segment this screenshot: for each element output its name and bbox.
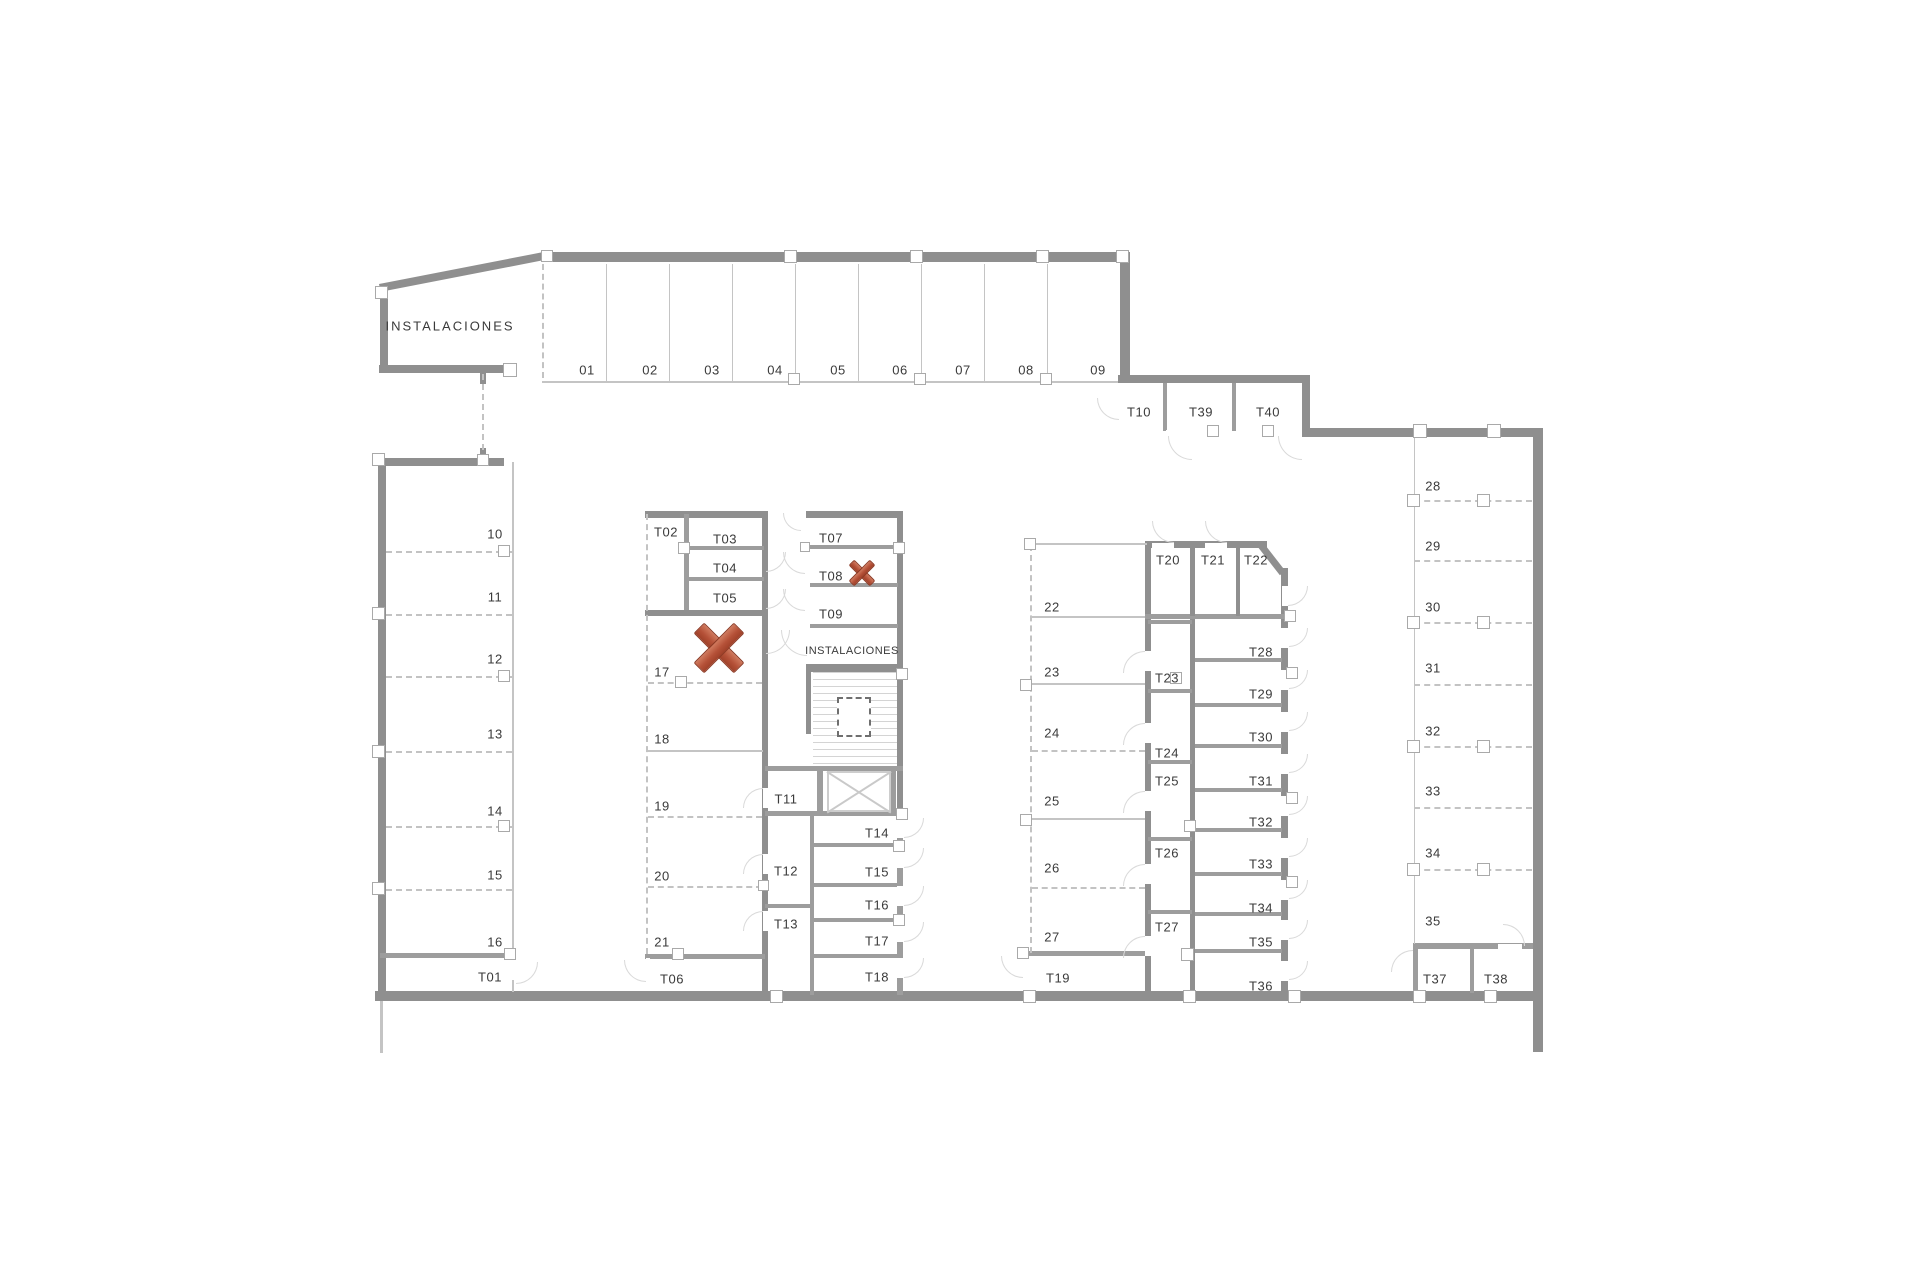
room-label-t06: T06	[660, 972, 684, 987]
column-marker	[1040, 373, 1052, 385]
wall	[1163, 383, 1167, 431]
room-label-09: 09	[1090, 363, 1105, 378]
wall	[810, 545, 898, 549]
door-arc	[1289, 712, 1308, 731]
room-label-15: 15	[487, 868, 502, 883]
door-arc	[904, 818, 924, 838]
wall	[1190, 541, 1195, 616]
wall	[380, 953, 513, 958]
column-marker	[1207, 425, 1219, 437]
room-label-t15: T15	[865, 865, 889, 880]
room-label-t11: T11	[775, 792, 798, 807]
column-marker	[672, 948, 684, 960]
door-arc	[783, 552, 805, 574]
column-marker	[1286, 792, 1298, 804]
room-label-t07: T07	[819, 531, 843, 546]
room-label-t23: T23	[1155, 671, 1179, 686]
wall	[1148, 620, 1192, 624]
door-opening	[1145, 723, 1152, 743]
door-opening	[763, 911, 769, 931]
room-label-04: 04	[767, 363, 782, 378]
wall	[810, 624, 898, 628]
room-label-t16: T16	[865, 898, 889, 913]
wall	[375, 991, 1543, 1001]
door-arc	[1503, 924, 1525, 946]
dashed-parking-divider	[1414, 622, 1532, 624]
column-marker	[503, 363, 517, 377]
room-label-14: 14	[487, 804, 502, 819]
door-arc	[1278, 436, 1302, 460]
column-marker	[784, 250, 797, 263]
dashed-parking-divider	[1414, 746, 1532, 748]
room-label-t30: T30	[1249, 730, 1273, 745]
room-label-t35: T35	[1249, 935, 1273, 950]
dashed-parking-divider	[1032, 887, 1145, 889]
elevator-shaft	[827, 771, 891, 812]
column-marker	[788, 373, 800, 385]
room-label-12: 12	[487, 652, 502, 667]
dashed-parking-divider	[386, 751, 512, 753]
room-label-23: 23	[1044, 665, 1059, 680]
column-marker	[1286, 667, 1298, 679]
door-arc	[1391, 950, 1413, 972]
door-opening	[1281, 628, 1289, 648]
column-marker	[1407, 863, 1420, 876]
room-label-t37: T37	[1423, 972, 1447, 987]
room-label-t34: T34	[1249, 901, 1273, 916]
wall	[1047, 264, 1048, 382]
wall	[1120, 252, 1130, 383]
door-opening	[1281, 754, 1289, 774]
room-label-t14: T14	[865, 826, 889, 841]
door-arc	[766, 552, 786, 572]
wall	[1030, 543, 1147, 545]
wall	[1032, 683, 1145, 685]
wall	[1533, 428, 1543, 1052]
door-arc	[1289, 628, 1308, 647]
column-marker	[1286, 876, 1298, 888]
room-label-05: 05	[830, 363, 845, 378]
wall	[1148, 760, 1192, 764]
wall	[1032, 818, 1145, 820]
room-label-t13: T13	[774, 917, 798, 932]
door-arc	[1123, 791, 1145, 813]
column-marker	[1413, 424, 1427, 438]
wall	[1032, 616, 1145, 618]
column-marker	[675, 676, 687, 688]
door-arc	[1123, 864, 1145, 886]
room-label-t04: T04	[713, 561, 737, 576]
door-arc	[783, 589, 805, 611]
column-marker	[1023, 990, 1036, 1003]
column-marker	[893, 840, 905, 852]
wall	[379, 251, 549, 292]
column-marker	[541, 250, 553, 262]
door-opening	[1152, 543, 1174, 550]
room-label-35: 35	[1425, 914, 1440, 929]
door-arc	[783, 513, 801, 531]
column-marker	[1477, 863, 1490, 876]
room-label-31: 31	[1425, 661, 1440, 676]
column-marker	[1017, 947, 1029, 959]
room-label-t09: T09	[819, 607, 843, 622]
door-opening	[808, 564, 814, 580]
column-marker	[504, 948, 516, 960]
marker-red-x-big-x	[697, 626, 740, 669]
column-marker	[910, 250, 923, 263]
room-label-16: 16	[487, 935, 502, 950]
dashed-parking-divider	[648, 886, 762, 888]
room-label-27: 27	[1044, 930, 1059, 945]
door-arc	[516, 962, 538, 984]
wall	[1118, 375, 1310, 383]
room-label-t26: T26	[1155, 846, 1179, 861]
wall	[984, 264, 985, 382]
column-marker	[1413, 990, 1426, 1003]
wall	[542, 381, 1118, 383]
wall	[1236, 541, 1240, 616]
dashed-parking-divider	[1414, 500, 1532, 502]
column-marker	[1116, 250, 1129, 263]
door-arc	[1123, 936, 1145, 958]
room-label-29: 29	[1425, 539, 1440, 554]
door-arc	[766, 589, 786, 609]
column-marker	[1477, 616, 1490, 629]
door-opening	[1145, 651, 1152, 671]
room-label-03: 03	[704, 363, 719, 378]
wall	[1413, 943, 1418, 993]
door-arc	[1152, 521, 1174, 543]
room-label-18: 18	[654, 732, 669, 747]
door-arc	[1168, 436, 1192, 460]
column-marker	[800, 542, 810, 552]
wall	[645, 954, 765, 959]
dashed-parking-divider	[386, 614, 512, 616]
door-opening	[763, 854, 769, 874]
wall	[1195, 872, 1282, 876]
door-arc	[743, 788, 763, 808]
door-opening	[646, 958, 650, 978]
door-arc	[1205, 521, 1227, 543]
column-marker	[1024, 538, 1036, 550]
room-label-t10: T10	[1127, 405, 1151, 420]
door-arc	[904, 848, 924, 868]
room-label-22: 22	[1044, 600, 1059, 615]
room-label-t29: T29	[1249, 687, 1273, 702]
room-label-t31: T31	[1249, 774, 1273, 789]
door-opening	[512, 960, 515, 980]
room-label-28: 28	[1425, 479, 1440, 494]
room-label-11: 11	[488, 590, 503, 605]
column-marker	[896, 668, 908, 680]
floor-plan: INSTALACIONES010203040506070809T10T39T40…	[0, 0, 1920, 1280]
column-marker	[893, 914, 905, 926]
wall	[1148, 689, 1192, 693]
wall	[812, 883, 898, 887]
room-label-t25: T25	[1155, 774, 1179, 789]
room-label-t33: T33	[1249, 857, 1273, 872]
door-arc	[1123, 651, 1145, 673]
wall	[921, 264, 922, 382]
column-marker	[372, 882, 385, 895]
room-label-26: 26	[1044, 861, 1059, 876]
column-marker	[1477, 494, 1490, 507]
room-label-30: 30	[1425, 600, 1440, 615]
wall	[1148, 837, 1192, 841]
door-arc	[1289, 754, 1308, 773]
room-label-t28: T28	[1249, 645, 1273, 660]
room-label-10: 10	[487, 527, 502, 542]
room-label-t17: T17	[865, 934, 889, 949]
column-marker	[758, 880, 769, 891]
wall	[1470, 949, 1474, 993]
room-label-t02: T02	[654, 525, 678, 540]
wall	[812, 918, 898, 922]
room-label-13: 13	[487, 727, 502, 742]
wall	[380, 1001, 383, 1053]
column-marker	[498, 820, 510, 832]
door-opening	[1281, 838, 1289, 858]
room-label-instalaciones: INSTALACIONES	[805, 645, 899, 657]
dashed-parking-divider	[386, 826, 512, 828]
dashed-parking-divider	[386, 889, 512, 891]
wall	[1232, 383, 1236, 431]
room-label-t21: T21	[1201, 553, 1225, 568]
door-arc	[1289, 838, 1308, 857]
wall	[732, 264, 733, 382]
door-arc	[1289, 961, 1308, 980]
door-arc	[904, 886, 924, 906]
room-label-t39: T39	[1189, 405, 1213, 420]
room-label-19: 19	[654, 799, 669, 814]
room-label-t01: T01	[478, 970, 502, 985]
marker-red-x-small-x	[850, 561, 873, 584]
door-opening	[1145, 864, 1152, 884]
door-arc	[1123, 723, 1145, 745]
column-marker	[1407, 616, 1420, 629]
wall	[688, 546, 764, 550]
wall	[648, 750, 763, 752]
room-label-17: 17	[654, 665, 669, 680]
wall	[817, 769, 823, 814]
room-label-instalaciones: INSTALACIONES	[385, 319, 514, 334]
wall	[1145, 543, 1151, 995]
room-label-t03: T03	[713, 532, 737, 547]
wall	[1195, 949, 1282, 953]
room-label-32: 32	[1425, 724, 1440, 739]
column-marker	[372, 453, 385, 466]
door-arc	[904, 922, 924, 942]
room-label-t24: T24	[1155, 746, 1179, 761]
room-label-20: 20	[654, 869, 669, 884]
dashed-wall	[1030, 545, 1032, 953]
column-marker	[1407, 740, 1420, 753]
door-arc	[624, 960, 646, 982]
column-marker	[1487, 424, 1501, 438]
column-marker	[372, 745, 385, 758]
wall	[806, 511, 903, 518]
dashed-parking-divider	[1414, 807, 1532, 809]
room-label-t32: T32	[1249, 815, 1273, 830]
dashed-wall	[646, 514, 648, 954]
door-arc	[1097, 398, 1119, 420]
door-arc	[904, 958, 924, 978]
door-opening	[897, 958, 904, 978]
wall	[645, 511, 767, 518]
column-marker	[896, 808, 908, 820]
column-marker	[1184, 820, 1196, 832]
dashed-parking-divider	[648, 682, 762, 684]
dashed-wall	[482, 374, 484, 450]
room-label-25: 25	[1044, 794, 1059, 809]
wall	[1302, 375, 1310, 435]
wall	[688, 577, 764, 581]
column-marker	[1288, 990, 1301, 1003]
column-marker	[498, 670, 510, 682]
door-opening	[808, 601, 814, 617]
dashed-wall	[542, 264, 544, 378]
room-label-t20: T20	[1156, 553, 1180, 568]
wall	[1148, 910, 1192, 914]
door-opening	[1205, 543, 1227, 550]
dashed-parking-divider	[1032, 750, 1145, 752]
wall	[806, 664, 903, 672]
door-opening	[1145, 936, 1152, 956]
room-label-t19: T19	[1046, 971, 1070, 986]
door-arc	[766, 630, 790, 654]
door-opening	[897, 818, 904, 838]
room-label-t05: T05	[713, 591, 737, 606]
dashed-parking-divider	[1414, 684, 1532, 686]
room-label-33: 33	[1425, 784, 1440, 799]
dashed-parking-divider	[386, 676, 512, 678]
wall	[858, 264, 859, 382]
dashed-parking-divider	[1414, 560, 1532, 562]
door-opening	[1281, 961, 1289, 981]
column-marker	[770, 990, 783, 1003]
column-marker	[1284, 610, 1296, 622]
room-label-34: 34	[1425, 846, 1440, 861]
column-marker	[477, 454, 489, 466]
door-opening	[1145, 791, 1152, 811]
column-marker	[1036, 250, 1049, 263]
room-label-01: 01	[579, 363, 594, 378]
wall	[606, 264, 607, 382]
room-label-t18: T18	[865, 970, 889, 985]
room-label-07: 07	[955, 363, 970, 378]
wall	[806, 672, 811, 734]
wall	[378, 460, 386, 992]
room-label-t36: T36	[1249, 979, 1273, 994]
room-label-08: 08	[1018, 363, 1033, 378]
door-arc	[743, 854, 763, 874]
column-marker	[1020, 679, 1032, 691]
door-opening	[763, 788, 769, 808]
wall	[765, 904, 812, 908]
room-label-t27: T27	[1155, 920, 1179, 935]
wall	[1190, 614, 1195, 995]
room-label-02: 02	[642, 363, 657, 378]
wall	[1195, 703, 1282, 707]
wall	[1195, 744, 1282, 748]
wall	[645, 610, 767, 616]
door-opening	[808, 527, 814, 543]
column-marker	[893, 542, 905, 554]
column-marker	[372, 607, 385, 620]
wall	[379, 365, 511, 373]
door-opening	[1281, 712, 1289, 732]
door-arc	[1289, 920, 1308, 939]
room-label-t38: T38	[1484, 972, 1508, 987]
door-arc	[1001, 956, 1023, 978]
room-label-06: 06	[892, 363, 907, 378]
room-label-21: 21	[654, 935, 669, 950]
door-opening	[1281, 920, 1289, 940]
wall	[812, 843, 898, 847]
wall	[684, 514, 689, 612]
door-arc	[1288, 586, 1308, 606]
column-marker	[1020, 814, 1032, 826]
dashed-parking-divider	[648, 816, 762, 818]
door-arc	[743, 911, 763, 931]
column-marker	[1262, 425, 1274, 437]
wall	[669, 264, 670, 382]
wall	[812, 954, 898, 958]
column-marker	[1477, 740, 1490, 753]
room-label-t22: T22	[1244, 553, 1268, 568]
room-label-24: 24	[1044, 726, 1059, 741]
dashed-parking-divider	[386, 551, 512, 553]
column-marker	[1183, 990, 1196, 1003]
column-marker	[914, 373, 926, 385]
room-label-t40: T40	[1256, 405, 1280, 420]
column-marker	[498, 545, 510, 557]
wall	[512, 462, 514, 992]
room-label-t12: T12	[774, 864, 798, 879]
wall	[1145, 614, 1287, 619]
dashed-parking-divider	[1414, 869, 1532, 871]
wall	[795, 264, 796, 382]
column-marker	[1407, 494, 1420, 507]
wall	[1195, 788, 1282, 792]
room-label-t08: T08	[819, 569, 843, 584]
column-marker	[678, 542, 690, 554]
column-marker	[1484, 990, 1497, 1003]
door-opening	[897, 886, 904, 906]
stair-landing-dashed-box	[837, 697, 871, 737]
column-marker	[1181, 948, 1194, 961]
column-marker	[375, 286, 388, 299]
